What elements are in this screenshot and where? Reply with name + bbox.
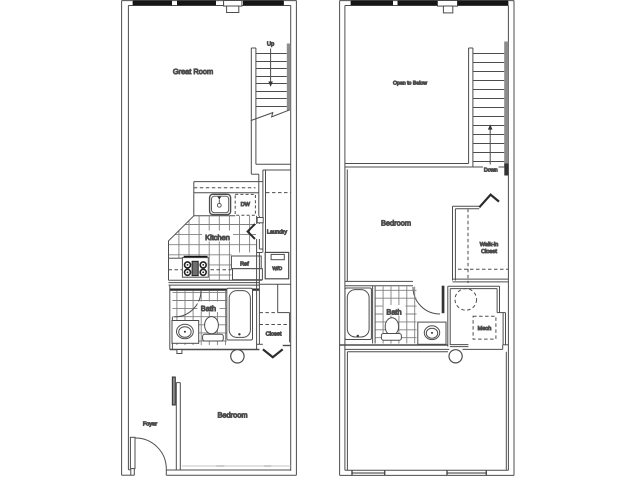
svg-text:Laundry: Laundry xyxy=(267,229,287,236)
svg-text:Foyer: Foyer xyxy=(143,422,157,428)
svg-text:Open to Below: Open to Below xyxy=(393,80,427,86)
svg-text:W/D: W/D xyxy=(272,266,282,272)
svg-text:Bedroom: Bedroom xyxy=(381,219,411,228)
svg-text:Great Room: Great Room xyxy=(173,67,213,76)
svg-text:Kitchen: Kitchen xyxy=(205,233,230,242)
svg-text:Bath: Bath xyxy=(386,308,401,317)
svg-text:DW: DW xyxy=(241,202,251,208)
svg-text:Up: Up xyxy=(267,42,274,48)
svg-text:Down: Down xyxy=(484,168,498,174)
svg-text:Mech: Mech xyxy=(478,325,492,332)
svg-text:Ref: Ref xyxy=(240,261,249,268)
svg-text:Closet: Closet xyxy=(266,331,282,338)
svg-text:Bedroom: Bedroom xyxy=(218,411,248,420)
svg-text:Closet: Closet xyxy=(481,248,497,255)
svg-text:Bath: Bath xyxy=(201,304,216,313)
svg-text:Walk-in: Walk-in xyxy=(480,241,498,248)
